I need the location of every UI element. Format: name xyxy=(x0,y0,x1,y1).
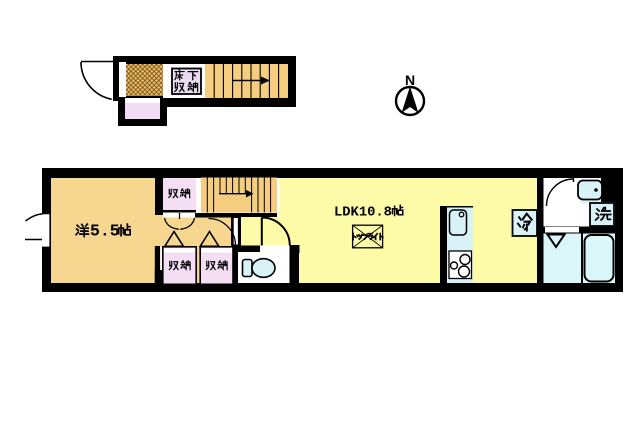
svg-text:5.5: 5.5 xyxy=(90,222,120,241)
svg-text:LDK10.8: LDK10.8 xyxy=(334,206,392,221)
svg-text:N: N xyxy=(405,72,415,88)
